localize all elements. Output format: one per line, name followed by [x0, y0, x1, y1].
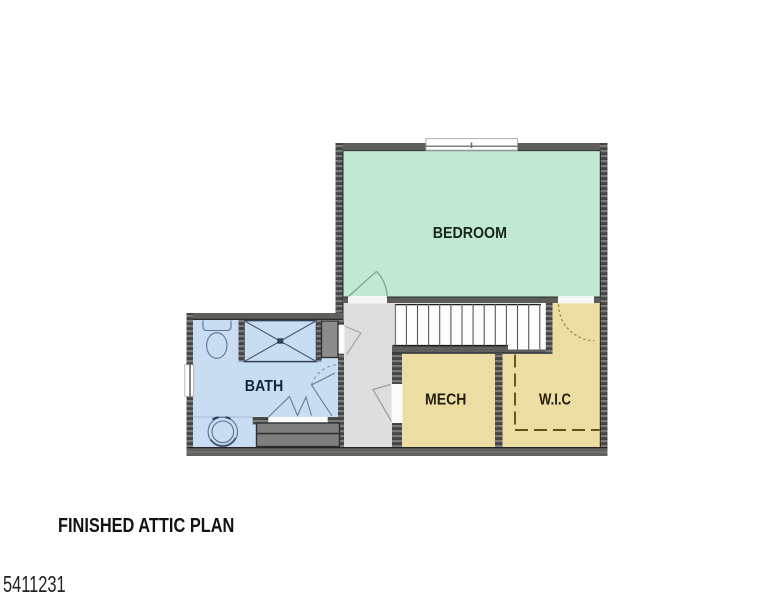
svg-text:BATH: BATH: [245, 377, 283, 395]
svg-text:MECH: MECH: [425, 392, 466, 409]
svg-text:BEDROOM: BEDROOM: [433, 224, 507, 242]
svg-text:FINISHED ATTIC PLAN: FINISHED ATTIC PLAN: [58, 513, 234, 536]
svg-text:W.I.C: W.I.C: [539, 391, 571, 408]
svg-text:5411231: 5411231: [3, 572, 66, 594]
